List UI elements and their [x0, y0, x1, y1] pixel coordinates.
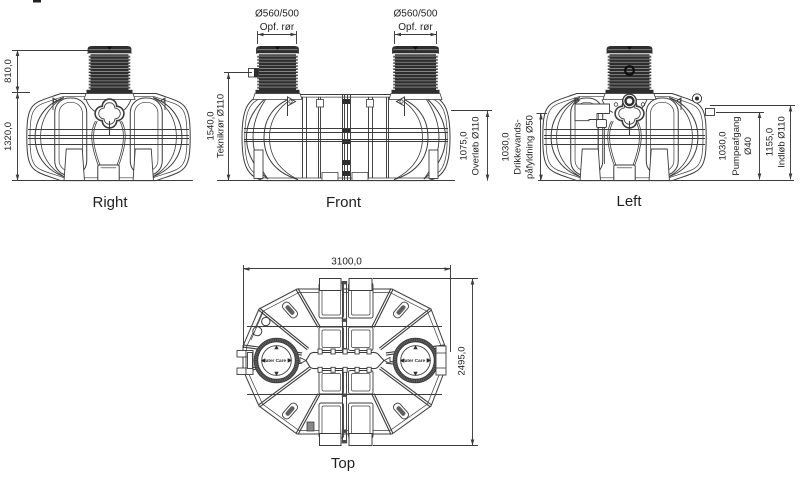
svg-text:1155,0: 1155,0 [765, 128, 776, 156]
svg-text:Pumpeafgang: Pumpeafgang [731, 116, 742, 175]
svg-text:1320,0: 1320,0 [3, 122, 14, 151]
svg-text:Teknikrør Ø110: Teknikrør Ø110 [216, 94, 227, 158]
svg-text:Front: Front [326, 194, 362, 211]
svg-text:Opf. rør: Opf. rør [260, 22, 295, 33]
svg-text:water Care ®: water Care ® [400, 357, 430, 363]
svg-text:Overløb Ø110: Overløb Ø110 [471, 117, 482, 176]
svg-text:2495,0: 2495,0 [457, 346, 468, 375]
svg-text:1030,0: 1030,0 [501, 132, 512, 161]
svg-text:Top: Top [331, 455, 355, 472]
svg-text:1030,0: 1030,0 [718, 131, 729, 160]
svg-text:Left: Left [616, 193, 642, 210]
svg-text:Drikkevands-: Drikkevands- [513, 119, 524, 174]
svg-text:810,0: 810,0 [3, 59, 14, 83]
svg-text:Ø560/500: Ø560/500 [255, 9, 299, 20]
svg-text:1075,0: 1075,0 [459, 131, 470, 160]
svg-text:water Care ®: water Care ® [261, 357, 291, 363]
svg-text:Right: Right [92, 194, 128, 211]
svg-text:Indløb Ø110: Indløb Ø110 [777, 116, 788, 168]
svg-text:Ø40: Ø40 [743, 137, 754, 155]
svg-text:Opf. rør: Opf. rør [398, 22, 433, 33]
svg-text:Ø560/500: Ø560/500 [394, 9, 438, 20]
svg-text:3100,0: 3100,0 [331, 257, 362, 268]
svg-text:påfyldning Ø50: påfyldning Ø50 [525, 115, 536, 179]
